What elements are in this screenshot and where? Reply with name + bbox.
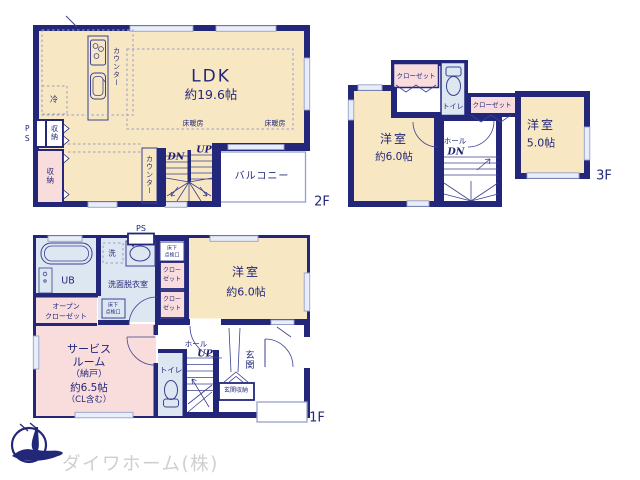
label-stairs-down-3f: DN <box>448 147 465 157</box>
unit-bath-room <box>36 238 98 295</box>
label-washroom: 洗面脱衣室 <box>108 281 148 289</box>
label-stairs-counter: カウンター <box>146 155 153 195</box>
label-floor-heating: 床暖房 <box>265 121 286 128</box>
label-entrance-storage: 玄関収納 <box>224 388 248 394</box>
label-room-right-size-3f: 5.0帖 <box>527 138 556 149</box>
label-unit-bath: UB <box>61 276 74 286</box>
toilet-room-1f <box>158 352 184 416</box>
floorplan-svg <box>0 0 640 480</box>
label-pipe-space-1f: PS <box>136 225 146 233</box>
label-open-closet: オープン <box>52 304 80 311</box>
label-service-room: サービス <box>67 344 111 355</box>
label-closet-bottom-1f: クロー <box>163 297 181 303</box>
label-service-room: ルーム <box>73 357 106 368</box>
label-closet-top-1f: ゼット <box>163 277 181 283</box>
window-icon <box>304 273 310 311</box>
pipe-space-box-1f <box>128 234 154 245</box>
company-logo-bird-icon <box>12 423 63 462</box>
label-ldk-size: 約19.6帖 <box>185 89 238 102</box>
label-toilet-1f: トイレ <box>160 366 183 374</box>
label-service-room: （納戸） <box>71 371 107 380</box>
label-floor-heating: 床暖房 <box>183 121 204 128</box>
label-floor-hatch: 床下 <box>167 247 177 252</box>
window-icon <box>210 236 258 242</box>
label-open-closet: クローゼット <box>45 314 87 321</box>
label-washer: 洗 <box>108 249 116 257</box>
label-floor-hatch: 床下 <box>108 304 118 309</box>
label-closet-top-1f: クロー <box>163 268 181 274</box>
window-icon <box>584 127 590 160</box>
company-name: ダイワホーム(株) <box>62 450 219 476</box>
hall-3f <box>441 118 499 204</box>
label-closet-left-3f: クローゼット <box>397 73 436 80</box>
window-icon <box>271 320 294 325</box>
window-icon <box>304 58 310 110</box>
label-closet-bottom-1f: ゼット <box>163 306 181 312</box>
label-room-1f: 洋室 <box>232 266 260 278</box>
label-hall-1f: ホール <box>185 340 208 348</box>
label-fridge: 冷 <box>50 96 58 104</box>
label-storage-upper: 収納 <box>51 125 58 141</box>
label-storage-lower: 収納 <box>46 168 54 185</box>
label-kitchen-counter: カウンター <box>113 47 120 87</box>
label-service-room: （CL含む） <box>67 396 112 405</box>
room-west-1f <box>187 238 307 322</box>
label-room-size-1f: 約6.0帖 <box>226 287 266 298</box>
label-stairs-up-2f: UP <box>196 145 211 155</box>
window-icon <box>348 100 354 120</box>
label-balcony: バルコニー <box>235 172 290 182</box>
window-icon <box>216 26 276 32</box>
label-closet-right-3f: クローゼット <box>473 102 512 109</box>
label-room-left-size-3f: 約6.0帖 <box>375 152 413 163</box>
room-west-right <box>518 94 587 176</box>
window-icon <box>358 85 382 91</box>
window-icon <box>75 412 133 418</box>
porch <box>257 402 307 422</box>
floor-label-3f: 3F <box>596 170 612 183</box>
label-entrance: 玄関 <box>244 350 253 370</box>
label-service-room: 約6.5帖 <box>70 383 108 394</box>
label-stairs-up-1f: UP <box>197 349 212 359</box>
window-icon <box>228 145 284 150</box>
window-icon <box>88 202 117 208</box>
label-hall-3f: ホール <box>444 137 467 145</box>
floorplan-canvas: LDK 約19.6帖 床暖房 床暖房 カウンター カウンター 冷 PS 収納 収… <box>0 0 640 480</box>
floor-label-2f: 2F <box>314 196 330 209</box>
label-stairs-down-2f: DN <box>168 152 185 162</box>
floor-label-1f: 1F <box>309 412 325 425</box>
window-icon <box>407 201 429 207</box>
window-icon <box>130 26 193 32</box>
window-icon <box>48 236 82 242</box>
label-room-right-3f: 洋室 <box>527 119 555 131</box>
window-icon <box>527 173 579 179</box>
window-icon <box>33 336 39 369</box>
pipe-space-box <box>36 120 46 147</box>
label-toilet-3f: トイレ <box>443 104 464 111</box>
label-floor-hatch: 点検口 <box>105 311 120 316</box>
floor-2f-plan <box>36 16 317 212</box>
label-ldk: LDK <box>191 69 231 86</box>
label-floor-hatch: 点検口 <box>164 254 179 259</box>
label-pipe-space-2f: PS <box>23 124 31 144</box>
label-room-left-3f: 洋室 <box>380 133 408 145</box>
window-icon <box>165 202 187 208</box>
